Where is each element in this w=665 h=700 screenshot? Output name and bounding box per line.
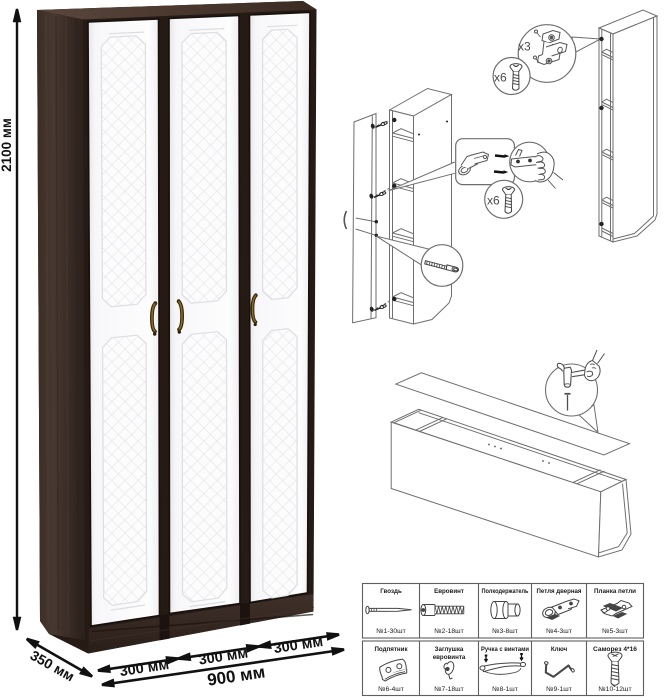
- svg-text:Подпятник: Подпятник: [374, 646, 408, 653]
- svg-text:Планка петли: Планка петли: [594, 588, 636, 595]
- svg-text:№6-4шт: №6-4шт: [378, 686, 404, 693]
- svg-text:x6: x6: [494, 71, 507, 85]
- svg-text:Петля дверная: Петля дверная: [537, 588, 582, 595]
- svg-text:№9-1шт: №9-1шт: [546, 686, 572, 693]
- svg-text:№5-3шт: №5-3шт: [602, 628, 628, 635]
- svg-text:Заглушка: Заглушка: [435, 646, 464, 653]
- svg-text:Ручка с винтами: Ручка с винтами: [481, 646, 529, 653]
- svg-text:№4-3шт: №4-3шт: [546, 628, 572, 635]
- svg-text:Полкодержатель: Полкодержатель: [482, 588, 529, 595]
- svg-text:№1-30шт: №1-30шт: [376, 628, 405, 635]
- svg-text:900 мм: 900 мм: [206, 662, 266, 689]
- svg-text:евровинта: евровинта: [433, 654, 466, 661]
- svg-text:2100 мм: 2100 мм: [0, 118, 14, 172]
- svg-text:Евровинт: Евровинт: [434, 588, 464, 595]
- svg-text:x6: x6: [487, 194, 500, 208]
- svg-text:№8-1шт: №8-1шт: [492, 686, 518, 693]
- svg-text:x3: x3: [518, 40, 531, 54]
- svg-text:Гвоздь: Гвоздь: [380, 588, 402, 595]
- svg-text:№3-8шт: №3-8шт: [492, 628, 518, 635]
- svg-text:№2-18шт: №2-18шт: [434, 628, 463, 635]
- svg-text:№7-18шт: №7-18шт: [434, 686, 463, 693]
- svg-text:Ключ: Ключ: [551, 646, 568, 653]
